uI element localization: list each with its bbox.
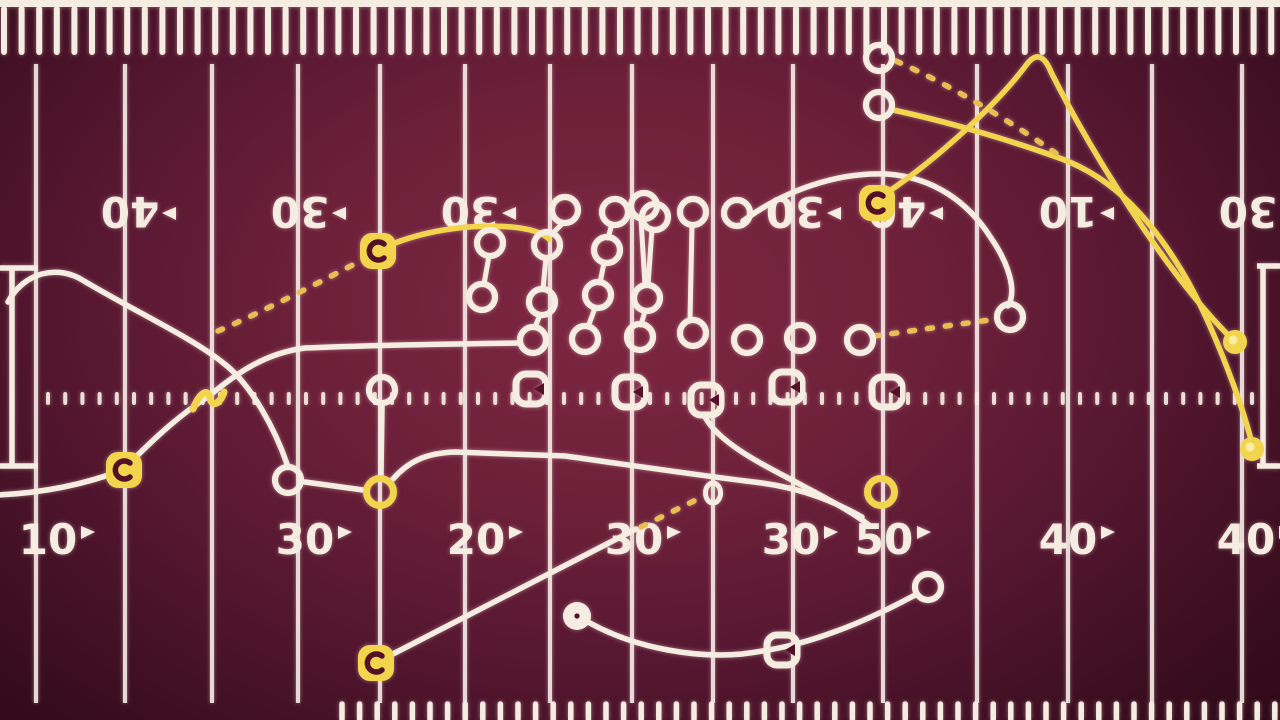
hash-mark xyxy=(46,392,50,405)
hash-mark xyxy=(1112,392,1116,405)
hash-mark xyxy=(184,392,188,405)
hash-mark xyxy=(1198,392,1202,405)
yard-number-near: 30 xyxy=(276,515,334,564)
route-white xyxy=(588,594,917,655)
route-white xyxy=(389,529,636,656)
hash-mark xyxy=(1181,392,1185,405)
player-square-yellow xyxy=(859,185,895,221)
yard-number-near: 10 xyxy=(19,515,77,564)
player-circle-white xyxy=(724,200,750,226)
hash-mark xyxy=(1216,392,1220,405)
yard-number-arrow xyxy=(81,526,95,539)
yard-number-arrow xyxy=(502,207,516,220)
yard-number-arrow xyxy=(162,207,176,220)
player-square-yellow xyxy=(360,233,396,269)
hash-mark xyxy=(906,392,910,405)
hash-mark xyxy=(889,392,893,405)
hash-mark xyxy=(631,392,635,405)
yard-number-arrow xyxy=(667,526,681,539)
player-circle-white xyxy=(734,327,760,353)
hash-mark xyxy=(356,392,360,405)
hash-mark xyxy=(287,392,291,405)
hash-mark xyxy=(235,392,239,405)
hash-mark xyxy=(837,392,841,405)
hash-mark xyxy=(975,392,979,405)
player-circle-white xyxy=(866,45,892,71)
hash-mark xyxy=(115,392,119,405)
hash-mark xyxy=(1078,392,1082,405)
hash-mark xyxy=(80,392,84,405)
player-circle-white xyxy=(680,320,706,346)
hash-mark xyxy=(321,392,325,405)
hash-mark xyxy=(682,392,686,405)
hash-mark xyxy=(923,392,927,405)
hash-mark xyxy=(1061,392,1065,405)
route-white xyxy=(381,406,382,475)
hash-mark xyxy=(751,392,755,405)
hash-mark xyxy=(338,392,342,405)
football-play-diagram: 403030304010301030203030504040 xyxy=(0,0,1280,720)
route-yellow-dashed xyxy=(218,258,366,331)
yard-number-far: 30 xyxy=(271,187,329,236)
hash-mark xyxy=(1164,392,1168,405)
left-field-bracket xyxy=(0,268,38,466)
yard-number-arrow xyxy=(338,526,352,539)
yard-number-far: 30 xyxy=(1219,187,1277,236)
route-white xyxy=(705,417,869,525)
hash-mark xyxy=(270,392,274,405)
player-circle-white xyxy=(552,197,578,223)
hash-mark xyxy=(459,392,463,405)
hash-mark xyxy=(98,392,102,405)
hash-mark xyxy=(442,392,446,405)
hash-mark xyxy=(304,392,308,405)
player-circle-white xyxy=(585,282,611,308)
hash-mark xyxy=(1130,392,1134,405)
right-field-bracket xyxy=(1257,266,1280,466)
player-circle-white xyxy=(520,327,546,353)
yard-number-arrow xyxy=(824,526,838,539)
hash-mark xyxy=(596,392,600,405)
player-square-notch xyxy=(534,383,544,395)
yard-number-arrow xyxy=(509,526,523,539)
player-circle-white xyxy=(680,199,706,225)
hash-mark xyxy=(940,392,944,405)
yard-number-far: 40 xyxy=(101,187,159,236)
route-white xyxy=(0,343,518,495)
player-disk-dot xyxy=(574,613,579,618)
hash-mark xyxy=(149,392,153,405)
hash-mark xyxy=(665,392,669,405)
yard-number-near: 30 xyxy=(762,515,820,564)
yard-number-near: 40 xyxy=(1217,515,1275,564)
route-end-dot-highlight xyxy=(1246,443,1255,452)
yard-number-arrow xyxy=(929,207,943,220)
hash-mark xyxy=(476,392,480,405)
hash-mark xyxy=(820,392,824,405)
player-circle-white xyxy=(602,199,628,225)
hash-mark xyxy=(1250,392,1254,405)
yard-number-arrow xyxy=(1101,526,1115,539)
player-circle-white xyxy=(866,92,892,118)
hash-mark xyxy=(493,392,497,405)
yard-number-near: 20 xyxy=(447,515,505,564)
hash-mark xyxy=(63,392,67,405)
motion-squiggle-marker xyxy=(193,392,224,409)
player-circle-white xyxy=(594,237,620,263)
yard-number-arrow xyxy=(1100,207,1114,220)
yard-number-arrow xyxy=(332,207,346,220)
yard-number-near: 40 xyxy=(1039,515,1097,564)
route-yellow-dashed xyxy=(874,320,990,336)
hash-mark xyxy=(992,392,996,405)
player-square-yellow xyxy=(106,452,142,488)
hash-mark xyxy=(579,392,583,405)
hash-mark xyxy=(1026,392,1030,405)
player-circle-white xyxy=(572,326,598,352)
hash-mark xyxy=(958,392,962,405)
route-yellow xyxy=(893,110,1251,440)
hash-mark xyxy=(734,392,738,405)
player-stem xyxy=(484,256,489,284)
yard-number-far: 10 xyxy=(1039,187,1097,236)
hash-mark xyxy=(854,392,858,405)
hash-mark xyxy=(1009,392,1013,405)
player-stem xyxy=(543,258,546,289)
hash-mark xyxy=(1147,392,1151,405)
yard-number-arrow xyxy=(917,526,931,539)
hash-mark xyxy=(424,392,428,405)
player-stem xyxy=(690,225,692,320)
player-circle-white xyxy=(634,285,660,311)
hash-mark xyxy=(648,392,652,405)
hash-mark xyxy=(132,392,136,405)
player-circle-white xyxy=(847,327,873,353)
route-end-dot-highlight xyxy=(1229,336,1238,345)
yard-number-arrow xyxy=(827,207,841,220)
top-sideline xyxy=(0,0,1280,7)
hash-mark xyxy=(1044,392,1048,405)
hash-mark xyxy=(166,392,170,405)
player-stem xyxy=(648,229,652,285)
player-circle-white xyxy=(915,574,941,600)
player-circle-white xyxy=(469,284,495,310)
play-diagram-svg: 403030304010301030203030504040 xyxy=(0,0,1280,720)
route-white xyxy=(305,482,363,490)
hash-mark xyxy=(562,392,566,405)
player-square-yellow xyxy=(358,645,394,681)
player-circle-white xyxy=(997,304,1023,330)
route-yellow-dashed xyxy=(896,61,1064,159)
hash-mark xyxy=(700,392,704,405)
hash-mark xyxy=(407,392,411,405)
hash-mark xyxy=(1095,392,1099,405)
